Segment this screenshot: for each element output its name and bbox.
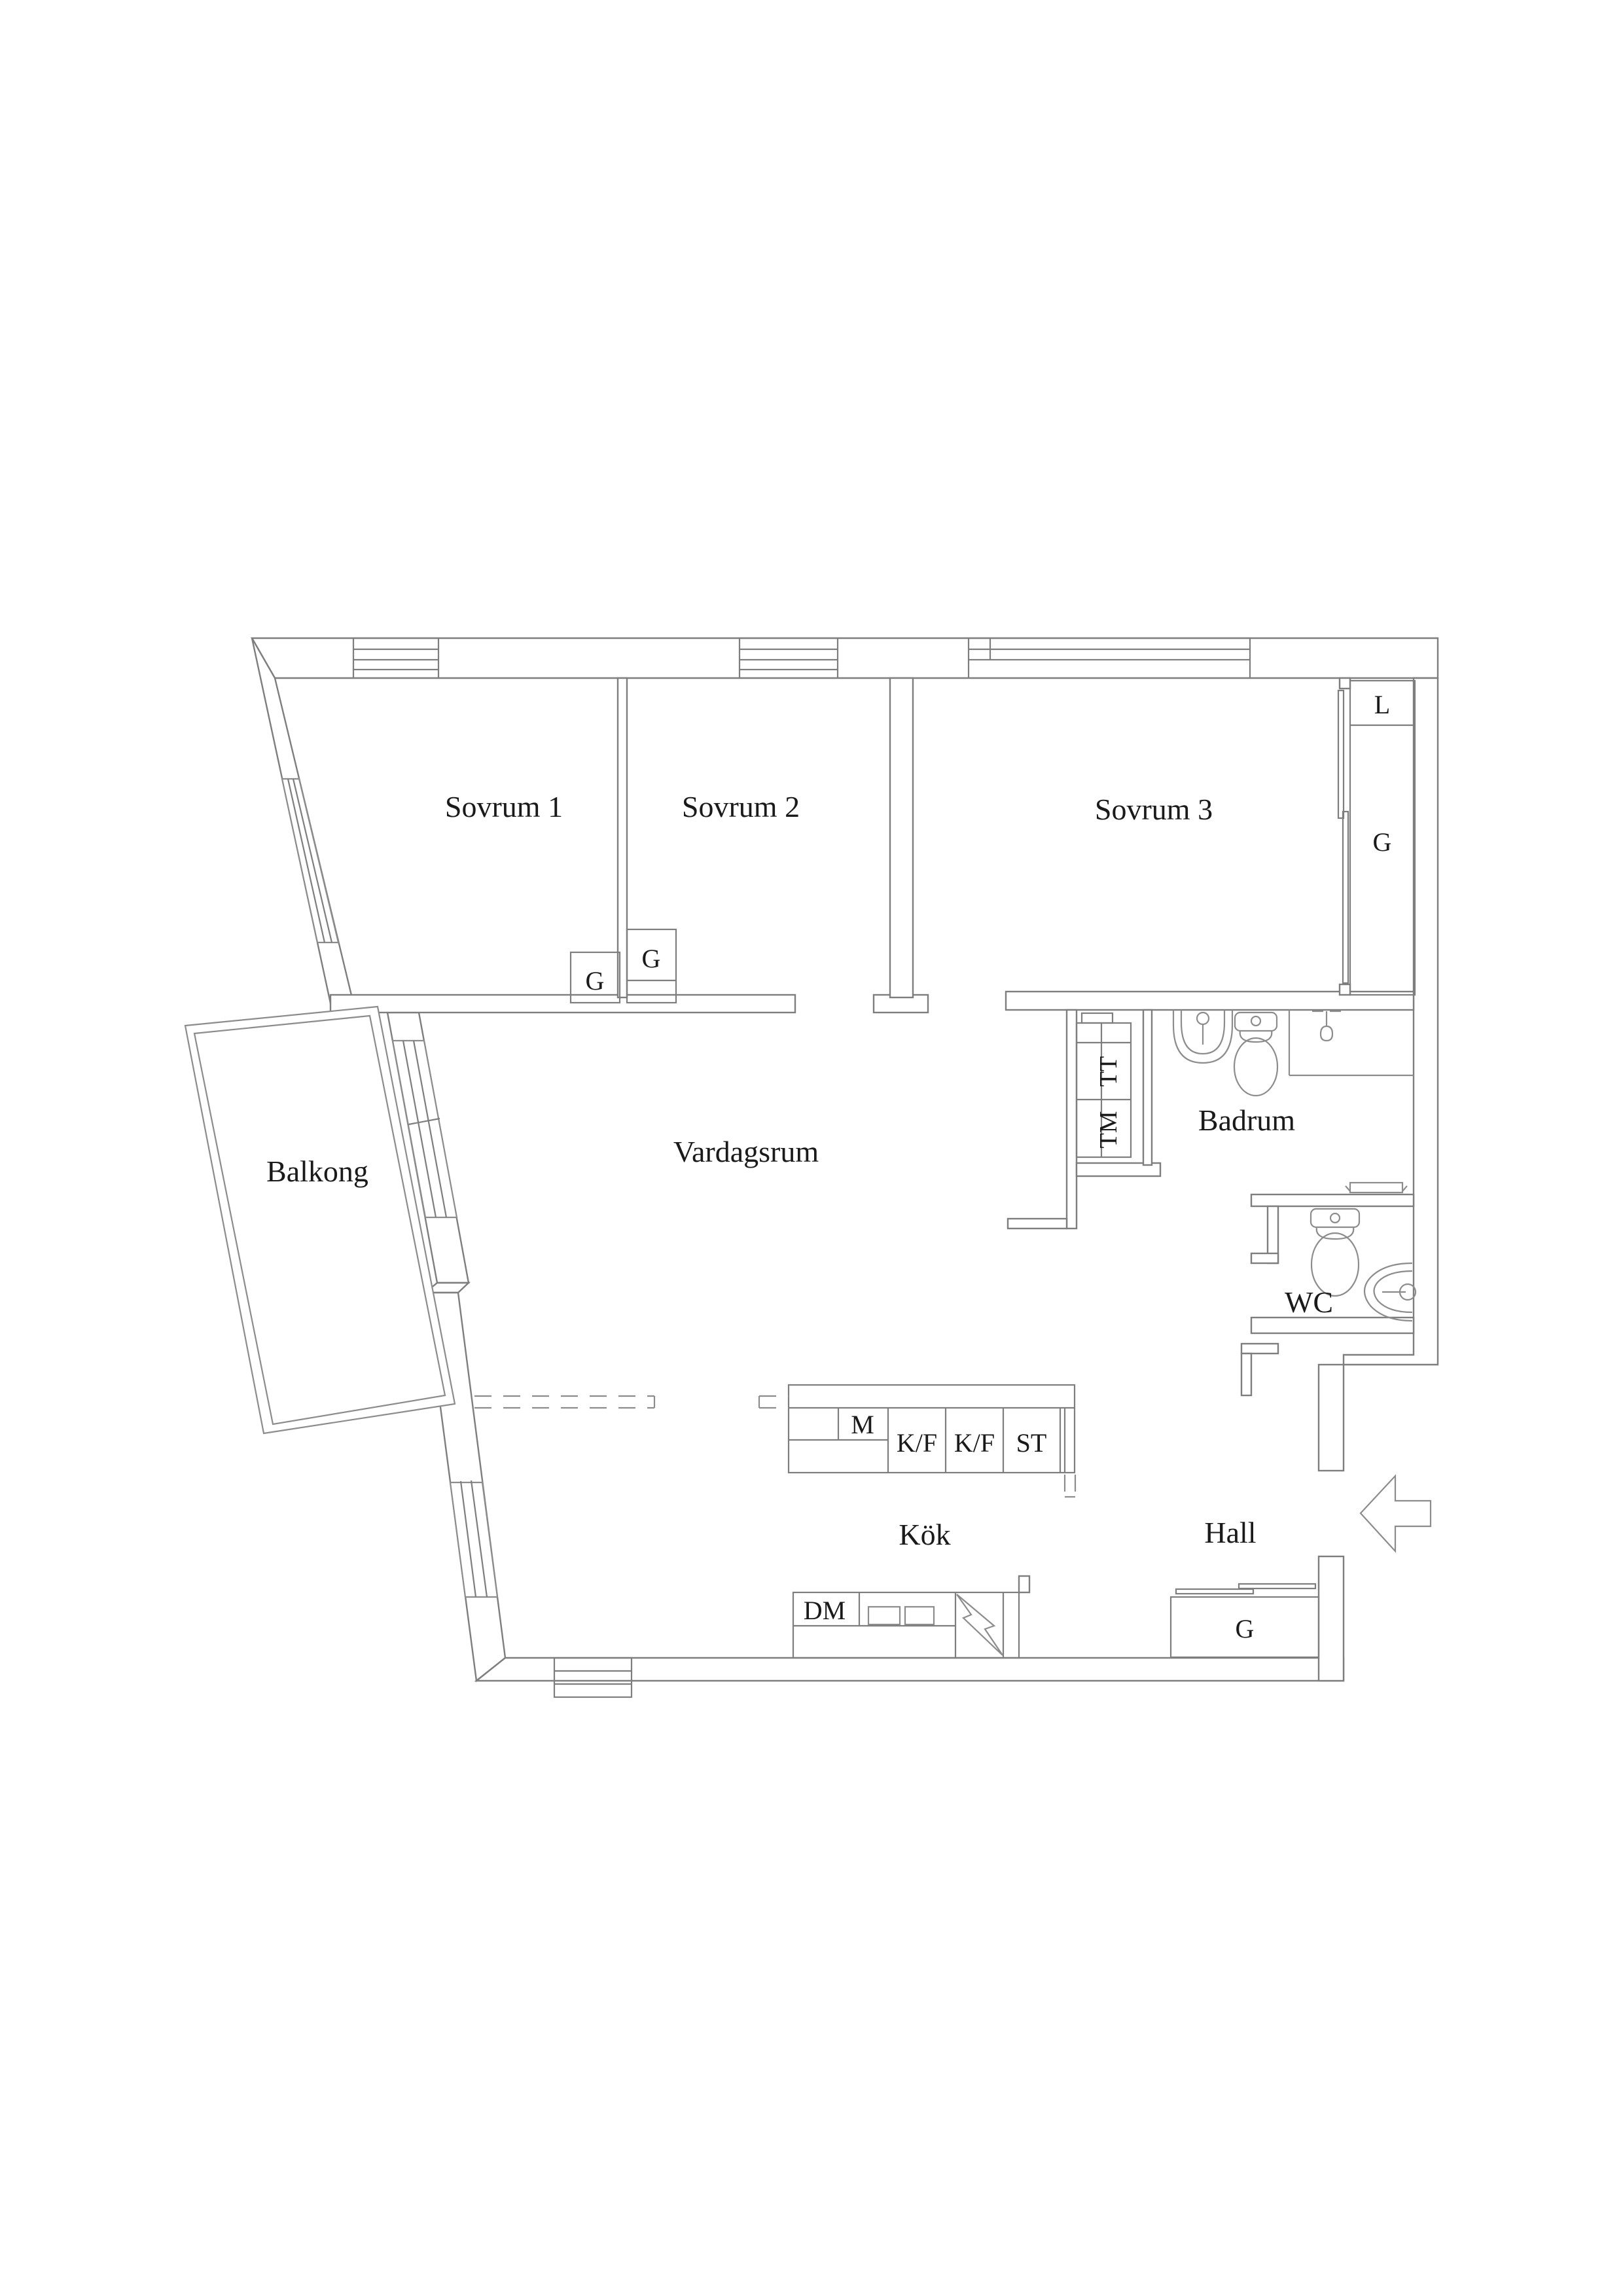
double-sink-icon <box>868 1607 934 1624</box>
sink-icon <box>1173 1010 1232 1063</box>
label-fridge-kf-2: K/F <box>954 1428 995 1458</box>
label-dishwasher-dm: DM <box>804 1596 846 1625</box>
room-label-badrum: Badrum <box>1198 1103 1295 1137</box>
wall-bedrooms-south-west <box>330 995 795 1013</box>
wall-below-wc-v <box>1241 1354 1251 1395</box>
wall-laundry-stub <box>1008 1219 1067 1229</box>
wall-sovrum2-sovrum3 <box>890 678 913 997</box>
room-label-sovrum-2: Sovrum 2 <box>682 790 800 823</box>
wall-sovrum1-sovrum2 <box>618 678 627 997</box>
wall-hall-right-lower <box>1319 1556 1344 1681</box>
toilet-icon <box>1234 1013 1277 1096</box>
room-label-vardagsrum: Vardagsrum <box>673 1135 819 1168</box>
radiator-icon <box>1346 1183 1407 1193</box>
room-label-sovrum-1: Sovrum 1 <box>445 790 563 823</box>
room-label-balkong: Balkong <box>266 1155 368 1188</box>
floorplan-page: Sovrum 1 Sovrum 2 Sovrum 3 Vardagsrum Ba… <box>0 0 1623 2296</box>
wall-wc-south <box>1251 1318 1414 1333</box>
laundry-top-shelf <box>1082 1013 1113 1023</box>
wall-laundry-west <box>1067 1010 1077 1229</box>
wall-badrum-south <box>1251 1194 1414 1206</box>
room-label-hall: Hall <box>1204 1516 1256 1549</box>
floorplan-drawing: Sovrum 1 Sovrum 2 Sovrum 3 Vardagsrum Ba… <box>0 0 1623 2296</box>
sliding-door-icon <box>1176 1584 1315 1594</box>
sliding-door-icon <box>1338 678 1350 995</box>
label-wardrobe-g-sovrum2: G <box>642 944 661 973</box>
room-label-sovrum-3: Sovrum 3 <box>1095 793 1213 826</box>
round-sink-icon <box>1364 1263 1416 1321</box>
label-closet-g: G <box>1373 827 1392 857</box>
entrance-arrow-icon <box>1361 1476 1431 1551</box>
shower-head-icon <box>1289 1010 1414 1075</box>
lightning-icon <box>957 1594 1003 1655</box>
wall-top <box>252 638 1438 678</box>
label-closet-l: L <box>1374 690 1390 719</box>
label-wardrobe-g-sovrum1: G <box>586 966 605 996</box>
toilet-icon <box>1311 1209 1359 1296</box>
window-icon <box>450 1480 497 1597</box>
label-tall-cabinet-st: ST <box>1016 1428 1047 1458</box>
wall-hall-right-upper <box>1319 1365 1344 1471</box>
wall-right <box>1344 678 1438 1365</box>
label-fridge-kf-1: K/F <box>897 1428 937 1458</box>
wall-badrum-west <box>1143 1010 1152 1165</box>
room-label-wc: WC <box>1285 1285 1333 1319</box>
wall-below-wc-h <box>1241 1344 1278 1354</box>
window-icon <box>282 779 338 942</box>
wall-wc-west-jut <box>1251 1253 1278 1263</box>
wall-kitchen-hall-stub <box>1019 1576 1029 1592</box>
label-washer-tm: TM <box>1095 1111 1122 1149</box>
room-label-kok: Kök <box>899 1518 950 1551</box>
label-wardrobe-g-hall: G <box>1236 1614 1255 1643</box>
label-dryer-tt: TT <box>1095 1056 1122 1086</box>
wall-bottom <box>476 1658 1344 1681</box>
badrum-fixtures <box>1173 1010 1414 1193</box>
label-microwave-m: M <box>851 1410 874 1439</box>
